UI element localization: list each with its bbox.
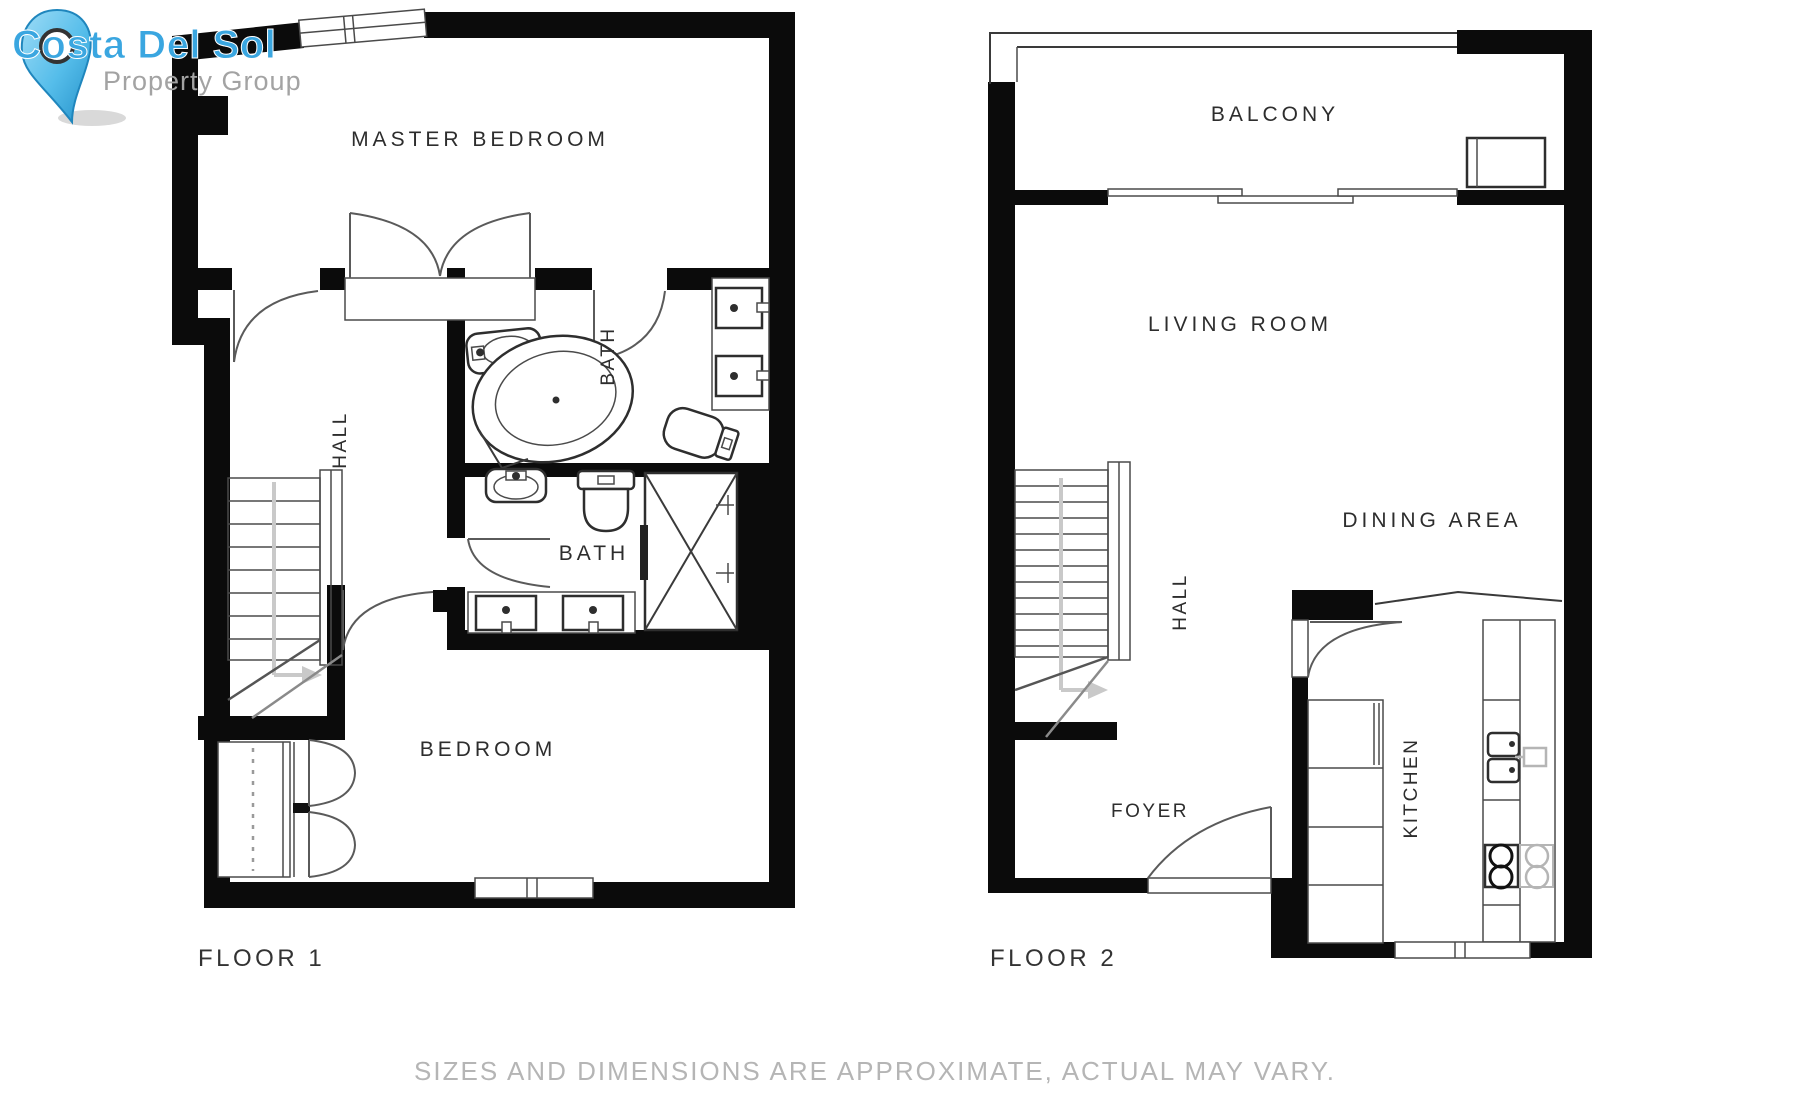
stairs — [228, 470, 342, 718]
logo-subtitle: Property Group — [103, 66, 302, 96]
floor2-plan: BALCONY LIVING ROOM DINING AREA HALL FOY… — [988, 30, 1592, 972]
sliding-door — [1108, 189, 1457, 203]
toilet — [578, 471, 634, 531]
door-arc — [343, 590, 433, 650]
bedroom-label: BEDROOM — [420, 738, 557, 761]
balcony-railing — [990, 33, 1457, 84]
closet — [218, 740, 355, 877]
bath-lower-label: BATH — [559, 542, 629, 565]
kitchen-cabinets — [1308, 700, 1383, 943]
window — [1395, 942, 1530, 958]
kitchen-counter — [1483, 620, 1555, 942]
hall-label-floor2: HALL — [1170, 573, 1191, 631]
stairs — [1015, 462, 1130, 737]
shower — [640, 473, 737, 630]
dining-area-label: DINING AREA — [1342, 509, 1521, 532]
logo-title: Costa Del Sol — [12, 23, 276, 67]
vanity-sinks — [712, 278, 769, 410]
hall-label-floor1: HALL — [330, 411, 351, 469]
kitchen-label: KITCHEN — [1401, 738, 1422, 839]
master-bedroom-label: MASTER BEDROOM — [351, 128, 609, 151]
door-arc — [1292, 620, 1402, 677]
wardrobe — [345, 213, 535, 320]
floor-plan-drawing: MASTER BEDROOM HALL BATH BATH BEDROOM FL… — [0, 0, 1800, 1100]
floor-plan-page: MASTER BEDROOM HALL BATH BATH BEDROOM FL… — [0, 0, 1800, 1100]
balcony-label: BALCONY — [1211, 103, 1339, 126]
door-arc — [234, 290, 318, 362]
bathroom-sink — [486, 469, 546, 502]
floor1-plan: MASTER BEDROOM HALL BATH BATH BEDROOM FL… — [172, 9, 795, 972]
toilet — [660, 404, 741, 466]
logo: Costa Del Sol Property Group — [12, 10, 302, 126]
bath-upper-label: BATH — [598, 326, 619, 385]
door-arc — [468, 539, 550, 587]
balcony-table — [1467, 138, 1545, 187]
window — [299, 9, 427, 47]
floor2-title: FLOOR 2 — [990, 945, 1117, 972]
living-room-label: LIVING ROOM — [1148, 313, 1332, 336]
vanity-sinks — [468, 592, 635, 633]
foyer-label: FOYER — [1111, 801, 1189, 822]
counter-edge — [1375, 592, 1562, 604]
floor1-title: FLOOR 1 — [198, 945, 325, 972]
window — [475, 878, 593, 898]
disclaimer-text: SIZES AND DIMENSIONS ARE APPROXIMATE, AC… — [414, 1056, 1336, 1086]
